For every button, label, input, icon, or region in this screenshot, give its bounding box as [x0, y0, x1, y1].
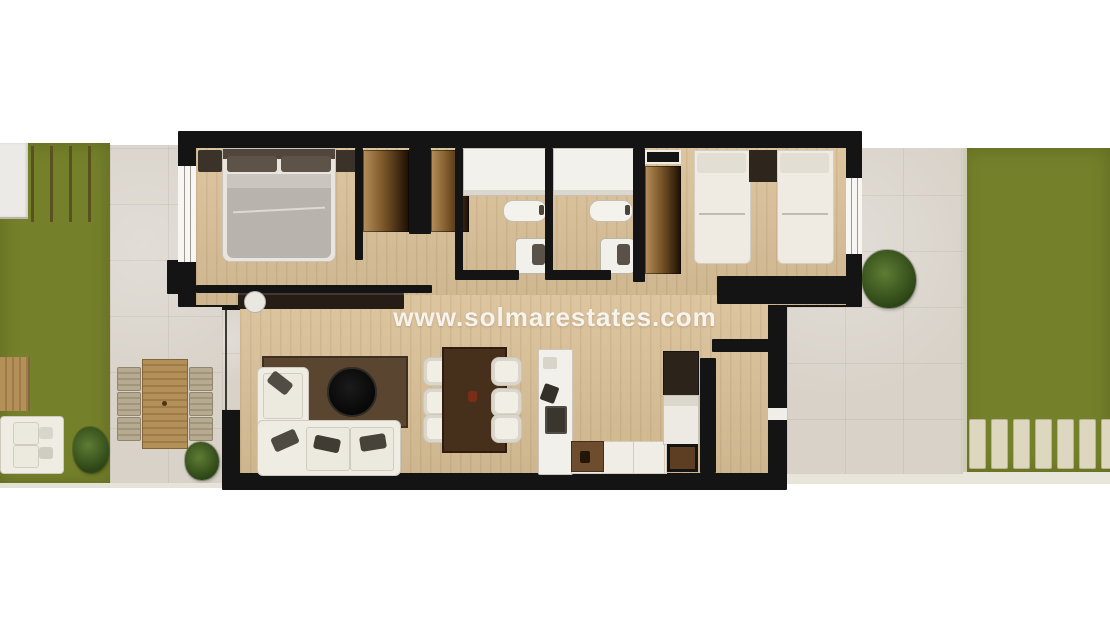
faucet	[540, 383, 560, 404]
bathroom1-bottom-wall	[455, 270, 519, 280]
master-bedroom-window	[178, 166, 196, 262]
dining-chair	[491, 388, 522, 417]
paving-slat	[1079, 419, 1096, 469]
pergola-stripe	[69, 146, 72, 222]
counter-decor	[543, 357, 557, 369]
bed-duvet	[227, 174, 331, 258]
bathroom2-right-wall	[633, 148, 645, 282]
shower	[553, 148, 635, 196]
kitchen-sink-unit	[571, 441, 604, 472]
toilet	[600, 238, 635, 274]
candle-decor	[468, 391, 477, 402]
pergola-stripe	[31, 146, 34, 222]
outdoor-chair	[117, 392, 141, 416]
dining-chair	[491, 414, 522, 443]
paving-slat	[1035, 419, 1052, 469]
outdoor-dining-table	[142, 359, 188, 449]
twin-bed	[694, 150, 751, 264]
bedroom2-window	[846, 178, 862, 254]
kitchen-island	[538, 349, 573, 475]
dining-chair	[491, 357, 522, 386]
plant	[73, 427, 109, 473]
bed-pillow	[281, 156, 331, 172]
tall-unit	[663, 395, 699, 445]
exterior-wall-pillar	[167, 260, 189, 294]
hob	[545, 406, 567, 434]
double-bed	[222, 148, 336, 262]
bed-pillow-area	[697, 153, 746, 173]
paving-slat	[1013, 419, 1030, 469]
bed-fold-line	[699, 213, 745, 215]
sofa-cushion	[13, 445, 39, 468]
washbasin	[589, 200, 633, 222]
outdoor-chair	[117, 367, 141, 391]
entry-top-wall	[712, 339, 787, 352]
sink-bowl	[580, 451, 590, 463]
white-planter	[0, 143, 28, 219]
interior-wall	[409, 148, 431, 234]
outdoor-chair	[189, 367, 213, 391]
sofa-pillow	[39, 447, 53, 459]
bathroom-divider-wall	[545, 148, 553, 276]
right-garden-edge	[963, 472, 1110, 484]
sofa-pillow	[39, 427, 53, 439]
bathroom2-bottom-wall	[545, 270, 611, 280]
paving-slat	[1057, 419, 1074, 469]
outdoor-sofa	[0, 416, 64, 474]
plant	[185, 442, 219, 480]
watermark-text: www.solmarestates.com	[0, 302, 1110, 333]
kitchen-entry-wall	[700, 358, 716, 473]
outdoor-chair	[189, 392, 213, 416]
pergola-stripe	[50, 146, 53, 222]
floorplan-render: www.solmarestates.com	[0, 0, 1110, 626]
paving-slat	[969, 419, 986, 469]
wardrobe	[645, 166, 681, 274]
left-terrace-edge	[110, 483, 222, 488]
shower	[463, 148, 547, 196]
plant	[862, 250, 916, 308]
bathroom1-left-wall	[455, 148, 463, 276]
bed-pillow	[227, 156, 277, 172]
nightstand	[198, 150, 222, 172]
interior-wall	[355, 148, 363, 260]
table-knob	[162, 401, 167, 406]
bed-pillow-area	[780, 153, 829, 173]
fridge	[663, 351, 699, 397]
outdoor-wood-table-left	[0, 357, 30, 411]
paving-slat	[991, 419, 1008, 469]
nightstand	[749, 150, 777, 182]
pergola-stripe	[88, 146, 91, 222]
outdoor-chair	[189, 417, 213, 441]
sofa-pillow	[270, 428, 300, 452]
corner-sofa-seat	[257, 420, 401, 476]
twin-bed	[777, 150, 834, 264]
paving-slat	[1101, 419, 1110, 469]
washbasin	[503, 200, 547, 222]
door-mat	[667, 444, 698, 472]
sofa-cushion	[13, 422, 39, 445]
bed-fold-line	[782, 213, 828, 215]
outdoor-chair	[117, 417, 141, 441]
wardrobe	[363, 150, 409, 232]
bedroom-living-wall	[196, 285, 432, 293]
right-patio-edge	[787, 474, 963, 484]
round-coffee-table	[327, 367, 377, 417]
bedroom2-bottom-wall	[717, 276, 848, 304]
shelf-box	[645, 150, 681, 164]
left-garden-edge	[0, 483, 110, 488]
entry-door-opening	[768, 408, 787, 420]
